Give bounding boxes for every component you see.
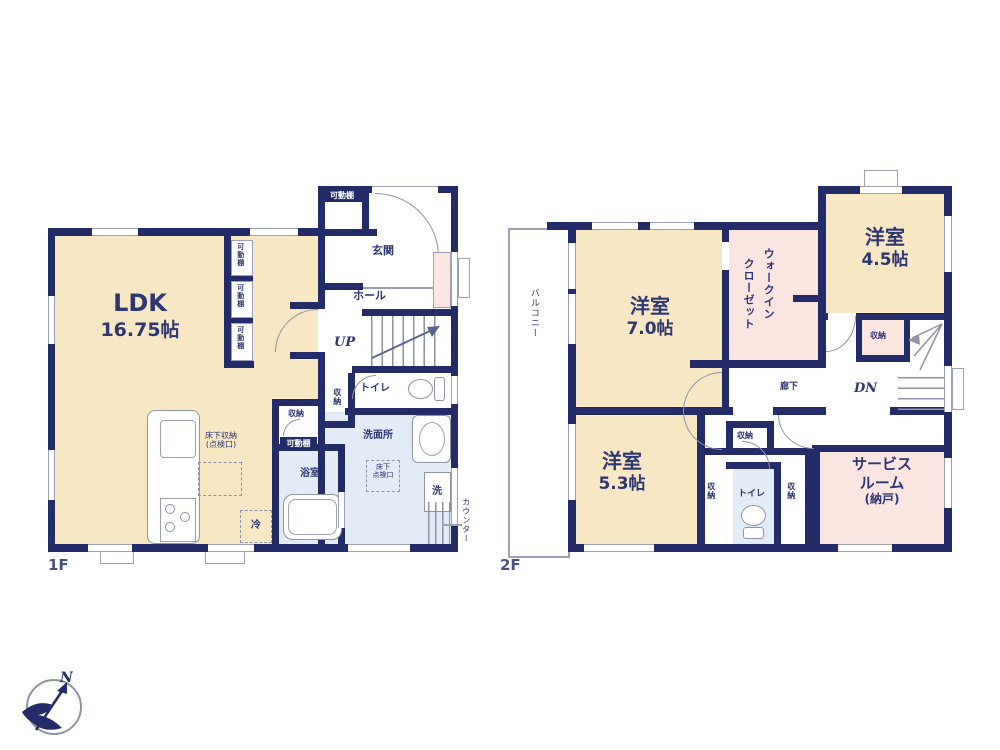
burner — [165, 522, 175, 532]
window — [568, 294, 576, 344]
wall — [345, 408, 451, 415]
window — [250, 228, 298, 236]
wall — [290, 302, 325, 309]
counter-lines — [428, 502, 450, 544]
wall — [805, 448, 812, 544]
shuno-label: 収納 — [288, 410, 304, 419]
window — [92, 228, 138, 236]
window — [88, 544, 132, 552]
fridge-label: 冷 — [251, 520, 261, 531]
bedroom53-label: 洋室 5.3帖 — [562, 450, 682, 494]
porch-step — [205, 552, 245, 564]
service-line2: ルーム — [826, 475, 938, 492]
yokushitsu-label: 浴室 — [300, 468, 320, 479]
wall — [48, 228, 55, 552]
shuno-left-label: 収納 — [706, 482, 715, 500]
kadodana-label: 可動棚 — [236, 326, 244, 350]
kadodana-label: 可動棚 — [236, 243, 244, 267]
stairs-up — [362, 316, 444, 366]
bedroom7-name: 洋室 — [590, 295, 710, 317]
shuno-label: 収納 — [332, 388, 341, 406]
window — [48, 296, 55, 344]
floor2-label: 2F — [500, 556, 521, 574]
wall — [767, 425, 774, 455]
window — [451, 468, 458, 524]
wall — [774, 462, 781, 544]
floor1-label: 1F — [48, 556, 69, 574]
shoe-cabinet — [433, 252, 451, 308]
balcony — [508, 228, 570, 558]
window — [208, 544, 254, 552]
stairs-down — [898, 368, 944, 416]
shuno-right-label: 収納 — [786, 482, 795, 500]
ldk-label: LDK 16.75帖 — [80, 290, 200, 341]
counter-label: カウンター — [461, 498, 470, 543]
toilet-bowl-2f — [741, 505, 766, 526]
bath-door — [338, 492, 345, 528]
service-room-label: サービス ルーム (納戸) — [826, 456, 938, 506]
balcony-label: バルコニー — [528, 288, 538, 338]
wall — [773, 407, 826, 415]
wall — [348, 373, 355, 428]
wall — [318, 421, 355, 428]
wall — [812, 445, 952, 452]
window — [860, 186, 902, 194]
window — [650, 222, 694, 230]
dn-label: DN — [854, 382, 877, 396]
genkan-label: 玄関 — [372, 245, 394, 257]
wall — [856, 355, 910, 362]
bay-window — [864, 170, 898, 187]
wall — [362, 309, 451, 316]
wall — [856, 313, 952, 320]
wall — [818, 230, 826, 313]
counter-leader — [442, 524, 462, 526]
up-label: UP — [334, 336, 355, 350]
wall — [812, 445, 820, 552]
window — [838, 544, 892, 552]
senmenjo-label: 洗面所 — [363, 430, 393, 441]
wall — [722, 230, 729, 242]
wall — [272, 399, 279, 544]
wall — [224, 236, 231, 368]
bathtub-inner — [288, 499, 337, 535]
window — [568, 243, 576, 289]
vanity-basin — [419, 422, 445, 456]
burner — [165, 504, 175, 514]
bedroom53-name: 洋室 — [562, 450, 682, 472]
shuno-top-label: 収納 — [737, 432, 753, 441]
porch-step — [100, 552, 134, 564]
bedroom7-label: 洋室 7.0帖 — [590, 295, 710, 339]
window — [584, 544, 654, 552]
window — [348, 544, 410, 552]
wall — [352, 366, 451, 373]
wall — [818, 313, 826, 360]
wall — [726, 425, 733, 455]
yukashita-tenken-line2: 点検口 — [366, 472, 400, 480]
window — [592, 222, 638, 230]
toilet-bowl — [408, 379, 433, 399]
yukashita-shuno-box — [198, 462, 242, 496]
wic-label-line2: クローゼット — [742, 258, 754, 330]
bedroom45-name: 洋室 — [828, 226, 942, 248]
compass: N — [14, 660, 94, 746]
wall — [690, 360, 826, 368]
window — [944, 216, 952, 272]
window — [944, 458, 952, 508]
ldk-size: 16.75帖 — [80, 320, 200, 341]
yukashita-shuno-line2: (点検口) — [197, 441, 245, 450]
bedroom45-label: 洋室 4.5帖 — [828, 226, 942, 270]
window — [451, 252, 458, 306]
service-line1: サービス — [826, 456, 938, 473]
wall — [224, 361, 254, 368]
bedroom53-size: 5.3帖 — [562, 475, 682, 494]
wall — [722, 270, 729, 367]
kadodana-label: 可動棚 — [236, 284, 244, 308]
bedroom7-size: 7.0帖 — [590, 320, 710, 339]
corridor-label: 廊下 — [780, 383, 798, 393]
toilet-tank — [434, 377, 445, 401]
ldk-name: LDK — [80, 290, 200, 316]
kadodana-tag: 可動棚 — [280, 437, 317, 450]
yukashita-shuno-label: 床下収納 (点検口) — [197, 432, 245, 450]
toilet-tank-2f — [743, 527, 764, 539]
toilet-label-2f: トイレ — [738, 490, 765, 500]
bay-window — [952, 368, 964, 410]
wall — [793, 295, 818, 302]
bay-window — [458, 258, 470, 298]
wall — [338, 444, 345, 494]
wall — [318, 236, 325, 309]
entrance-opening — [372, 186, 438, 193]
window — [48, 450, 55, 500]
wall — [318, 229, 377, 236]
burner — [180, 512, 190, 522]
wall — [818, 186, 826, 230]
wall — [722, 368, 729, 412]
yukashita-tenken-label: 床下 点検口 — [366, 464, 400, 479]
window — [451, 376, 458, 404]
hall-label: ホール — [353, 290, 386, 302]
wic-label-line1: ウォークイン — [762, 248, 774, 320]
window — [944, 366, 952, 412]
kitchen-sink — [160, 420, 196, 458]
stair-closet-label: 収納 — [870, 332, 886, 341]
service-line3: (納戸) — [826, 493, 938, 506]
floorplan-canvas: 可動棚 可動棚 可動棚 可動棚 UP トイレ 収納 洗面所 床下 点検口 洗 カ… — [0, 0, 1000, 750]
washer-label: 洗 — [432, 486, 442, 497]
bedroom45-size: 4.5帖 — [828, 251, 942, 270]
kadodana-tag: 可動棚 — [322, 189, 362, 202]
